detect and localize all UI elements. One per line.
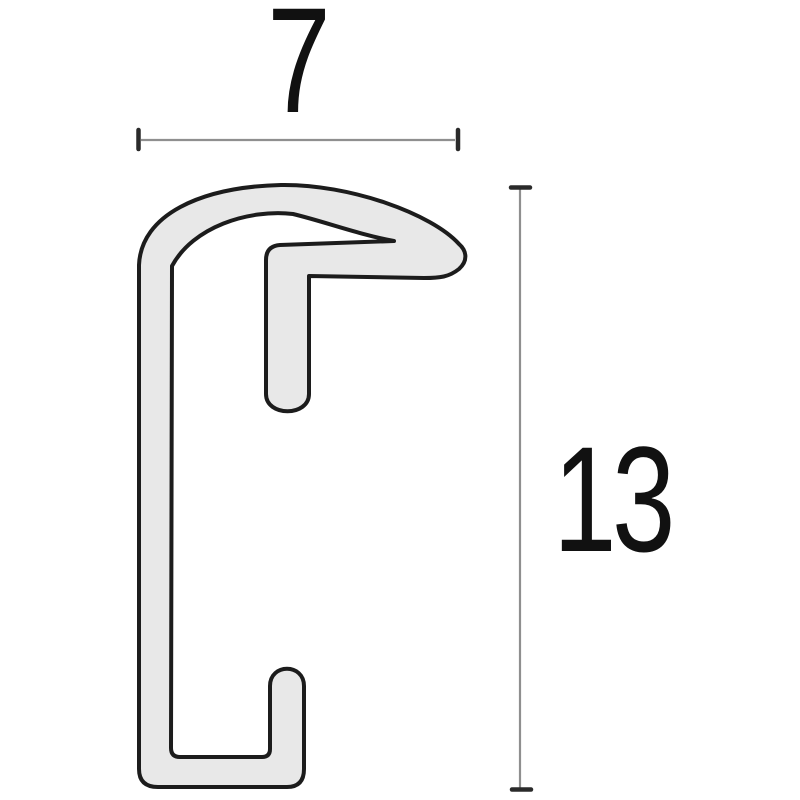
frame-profile-shape bbox=[139, 185, 465, 787]
width-dimension-label: 7 bbox=[267, 0, 330, 145]
profile-diagram-svg: 7 13 bbox=[0, 0, 800, 800]
height-dimension-label: 13 bbox=[553, 416, 671, 584]
width-dimension: 7 bbox=[139, 0, 459, 149]
height-dimension: 13 bbox=[511, 188, 671, 790]
diagram-canvas: 7 13 bbox=[0, 0, 800, 800]
